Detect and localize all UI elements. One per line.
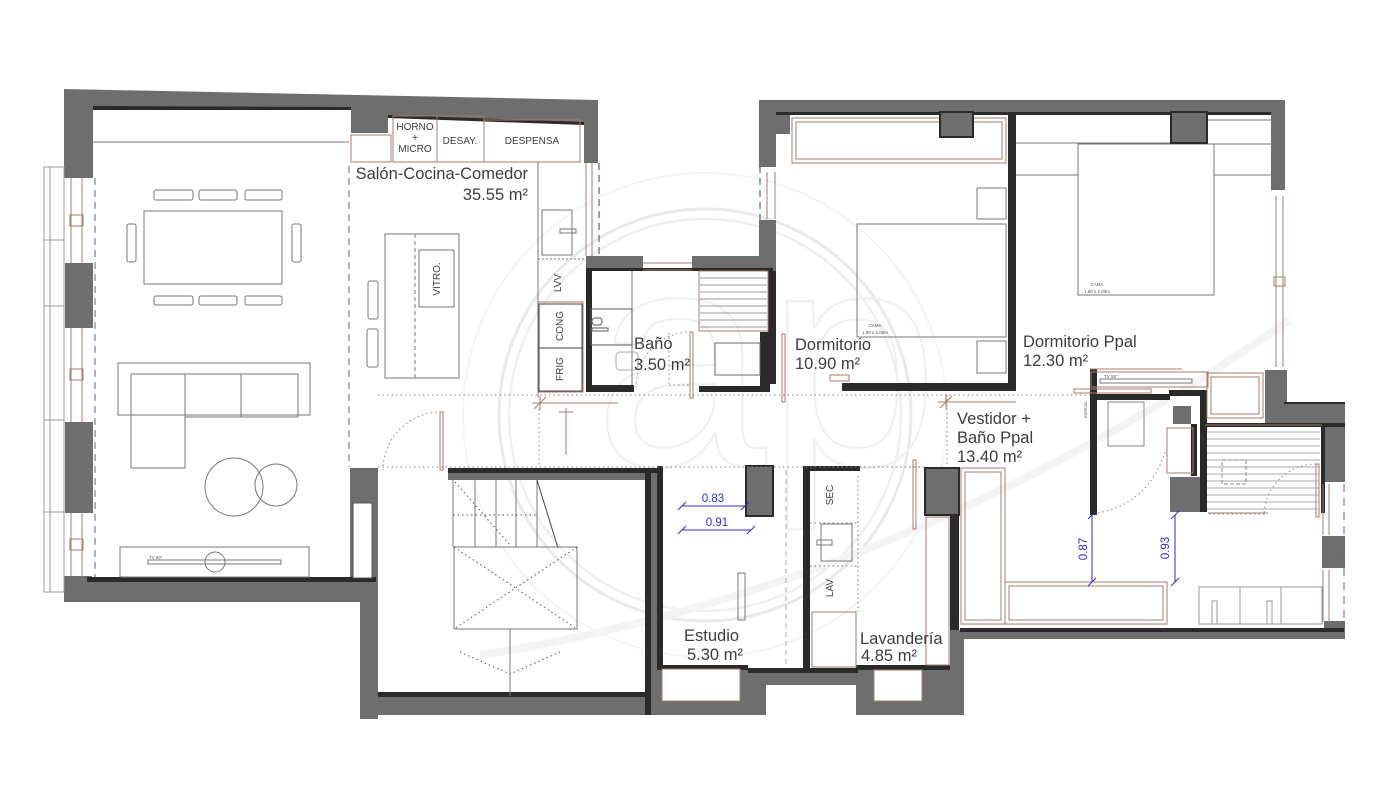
svg-text:VITRO.: VITRO. (432, 262, 443, 295)
svg-text:12.30 m²: 12.30 m² (1023, 352, 1089, 370)
svg-text:CALD.: CALD. (1199, 431, 1204, 443)
svg-text:+: + (412, 133, 418, 144)
svg-text:10.90 m²: 10.90 m² (795, 355, 861, 373)
svg-text:5.30 m²: 5.30 m² (687, 646, 743, 664)
svg-text:0.93: 0.93 (1160, 537, 1172, 559)
svg-text:DESPENSA: DESPENSA (505, 136, 560, 147)
svg-text:Lavandería: Lavandería (860, 630, 943, 648)
svg-text:DESAY.: DESAY. (443, 136, 478, 147)
svg-text:Baño Ppal: Baño Ppal (957, 429, 1033, 447)
svg-text:4.85 m²: 4.85 m² (861, 647, 917, 665)
svg-text:Vestidor +: Vestidor + (957, 410, 1031, 428)
svg-text:13.40 m²: 13.40 m² (957, 448, 1023, 466)
svg-text:1.80 x 2.00m: 1.80 x 2.00m (1084, 289, 1110, 294)
svg-text:LAV: LAV (825, 579, 836, 597)
svg-text:MICRO: MICRO (398, 144, 432, 155)
svg-text:0.91: 0.91 (706, 517, 728, 529)
svg-text:Estudio: Estudio (684, 627, 739, 645)
svg-text:0.83: 0.83 (702, 493, 724, 505)
svg-text:FRIG: FRIG (555, 357, 566, 381)
svg-text:35.55 m²: 35.55 m² (463, 186, 529, 204)
svg-text:ESPEJO: ESPEJO (1083, 402, 1088, 418)
svg-text:Baño: Baño (634, 335, 673, 353)
svg-text:LVV: LVV (553, 274, 564, 292)
svg-text:1.50 x 2.00m: 1.50 x 2.00m (862, 330, 888, 335)
svg-text:HORNO: HORNO (396, 122, 433, 133)
svg-text:0.87: 0.87 (1078, 538, 1090, 560)
svg-text:Dormitorio Ppal: Dormitorio Ppal (1023, 333, 1137, 351)
svg-text:Salón-Cocina-Comedor: Salón-Cocina-Comedor (356, 165, 529, 183)
svg-text:CAMA: CAMA (868, 323, 881, 328)
svg-text:SEC: SEC (825, 485, 836, 506)
svg-text:CONG: CONG (555, 311, 566, 341)
svg-text:TV 60": TV 60" (149, 555, 163, 560)
svg-text:TV 55": TV 55" (1104, 374, 1118, 379)
svg-text:3.50 m²: 3.50 m² (634, 356, 690, 374)
svg-text:CAMA: CAMA (1090, 282, 1103, 287)
svg-text:Dormitorio: Dormitorio (795, 336, 871, 354)
